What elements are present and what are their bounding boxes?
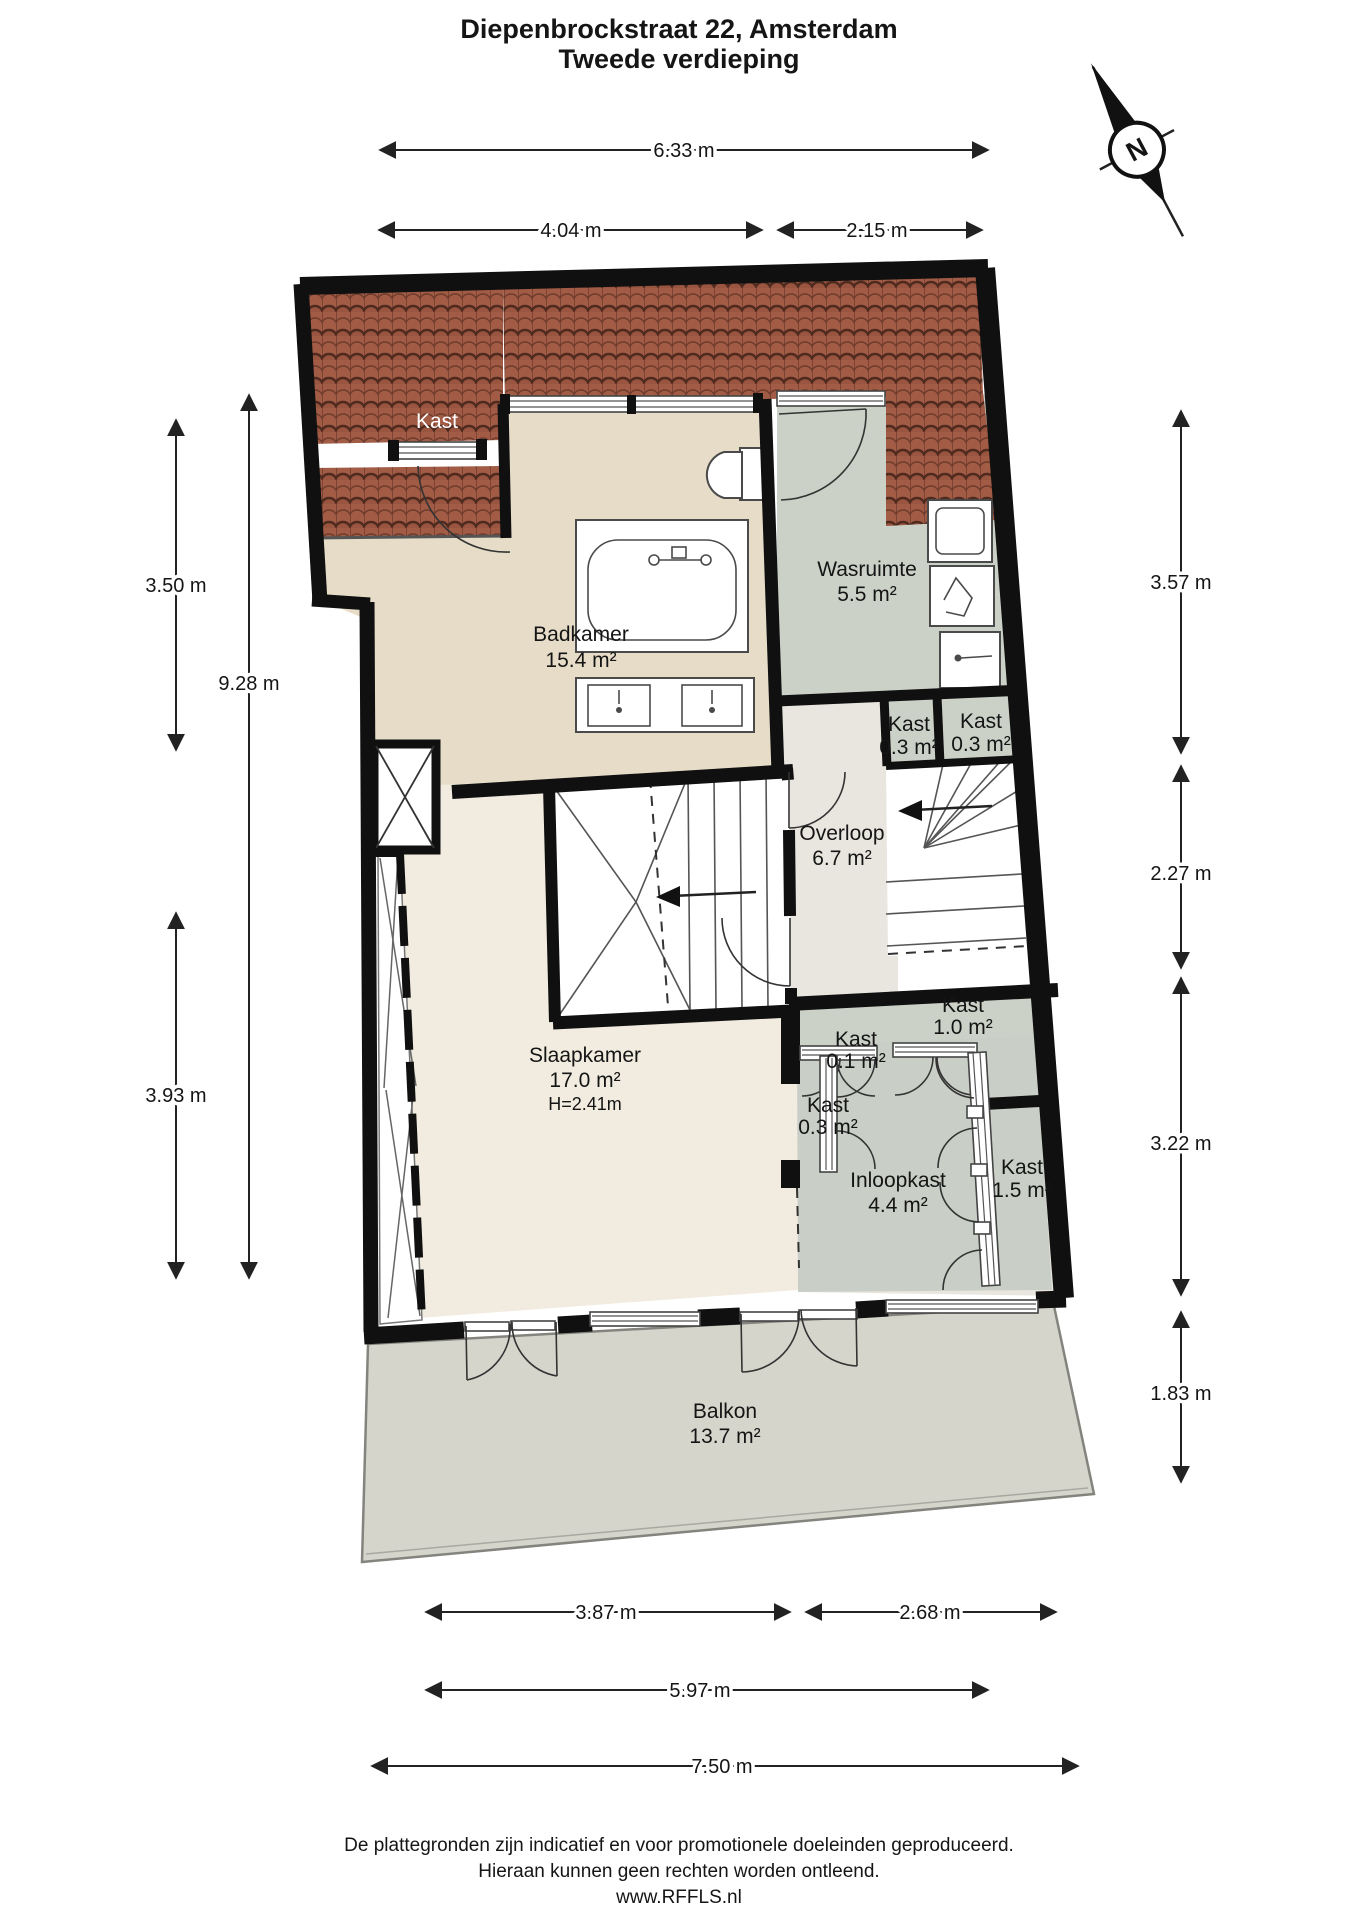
room-label-badkamer: Badkamer (533, 623, 629, 646)
stairs-lower (556, 772, 790, 1018)
floorplan-drawing: N Diepenbrockstraat 22, Amsterdam Tweede… (0, 0, 1358, 1920)
dim-left-393: 3.93 m (145, 1085, 206, 1107)
room-area-wasruimte: 5.5 m² (837, 583, 897, 606)
dim-left-928: 9.28 m (218, 673, 279, 695)
room-label-inloopkast: Inloopkast (850, 1169, 946, 1192)
shaft-icon (374, 744, 436, 850)
dim-upper-404: 4.04 m (540, 220, 601, 242)
dim-bottom-750: 7.50 m (691, 1756, 752, 1778)
room-label-slaapkamer: Slaapkamer (529, 1044, 641, 1067)
room-area-kast-15: 1.5 m² (992, 1179, 1052, 1202)
room-label-balkon: Balkon (693, 1400, 757, 1423)
room-label-kast-10: Kast (942, 994, 984, 1017)
room-area-slaapkamer: 17.0 m² (549, 1069, 620, 1092)
washer-icon (928, 500, 992, 562)
dim-upper-215: 2.15 m (846, 220, 907, 242)
room-label-overloop: Overloop (799, 822, 884, 845)
footer-disclaimer-line1: De plattegronden zijn indicatief en voor… (344, 1835, 1014, 1856)
room-area-badkamer: 15.4 m² (545, 649, 616, 672)
dim-right-183: 1.83 m (1150, 1383, 1211, 1405)
dim-left-350: 3.50 m (145, 575, 206, 597)
dryer-icon (930, 566, 994, 626)
room-label-kast-03: Kast (807, 1094, 849, 1117)
dim-bottom-597: 5.97 m (669, 1680, 730, 1702)
dim-top-633: 6.33 m (653, 140, 714, 162)
room-height-slaapkamer: H=2.41m (548, 1094, 622, 1114)
dim-bottom-268: 2.68 m (899, 1602, 960, 1624)
page-title-line1: Diepenbrockstraat 22, Amsterdam (460, 14, 897, 44)
dim-right-322: 3.22 m (1150, 1133, 1211, 1155)
toilet-icon (707, 448, 764, 500)
dim-right-357: 3.57 m (1150, 572, 1211, 594)
room-area-kast-10: 1.0 m² (933, 1016, 993, 1039)
room-label-kast-boven-rechts: Kast (960, 710, 1002, 733)
room-area-inloopkast: 4.4 m² (868, 1194, 928, 1217)
room-area-balkon: 13.7 m² (689, 1425, 760, 1448)
floorplan-page: N Diepenbrockstraat 22, Amsterdam Tweede… (0, 0, 1358, 1920)
room-area-kast-01: 0.1 m² (826, 1050, 886, 1073)
laundry-sink-icon (940, 632, 1000, 688)
double-washbasin-icon (576, 678, 754, 732)
room-area-overloop: 6.7 m² (812, 847, 872, 870)
room-area-kast-boven-rechts: 0.3 m² (951, 733, 1011, 756)
room-label-kast-attic: Kast (416, 410, 458, 433)
footer-website: www.RFFLS.nl (615, 1887, 742, 1908)
room-label-kast-boven-links: Kast (888, 713, 930, 736)
room-area-kast-boven-links: 0.3 m² (879, 736, 939, 759)
room-label-kast-15: Kast (1001, 1156, 1043, 1179)
dim-bottom-387: 3.87 m (575, 1602, 636, 1624)
room-label-wasruimte: Wasruimte (817, 558, 917, 581)
room-label-kast-01: Kast (835, 1028, 877, 1051)
page-title-line2: Tweede verdieping (558, 44, 799, 74)
footer-disclaimer-line2: Hieraan kunnen geen rechten worden ontle… (478, 1861, 879, 1882)
dim-right-227: 2.27 m (1150, 863, 1211, 885)
compass-icon: N (1054, 44, 1220, 256)
room-area-kast-03: 0.3 m² (798, 1116, 858, 1139)
stairs-upper (886, 757, 1032, 1000)
